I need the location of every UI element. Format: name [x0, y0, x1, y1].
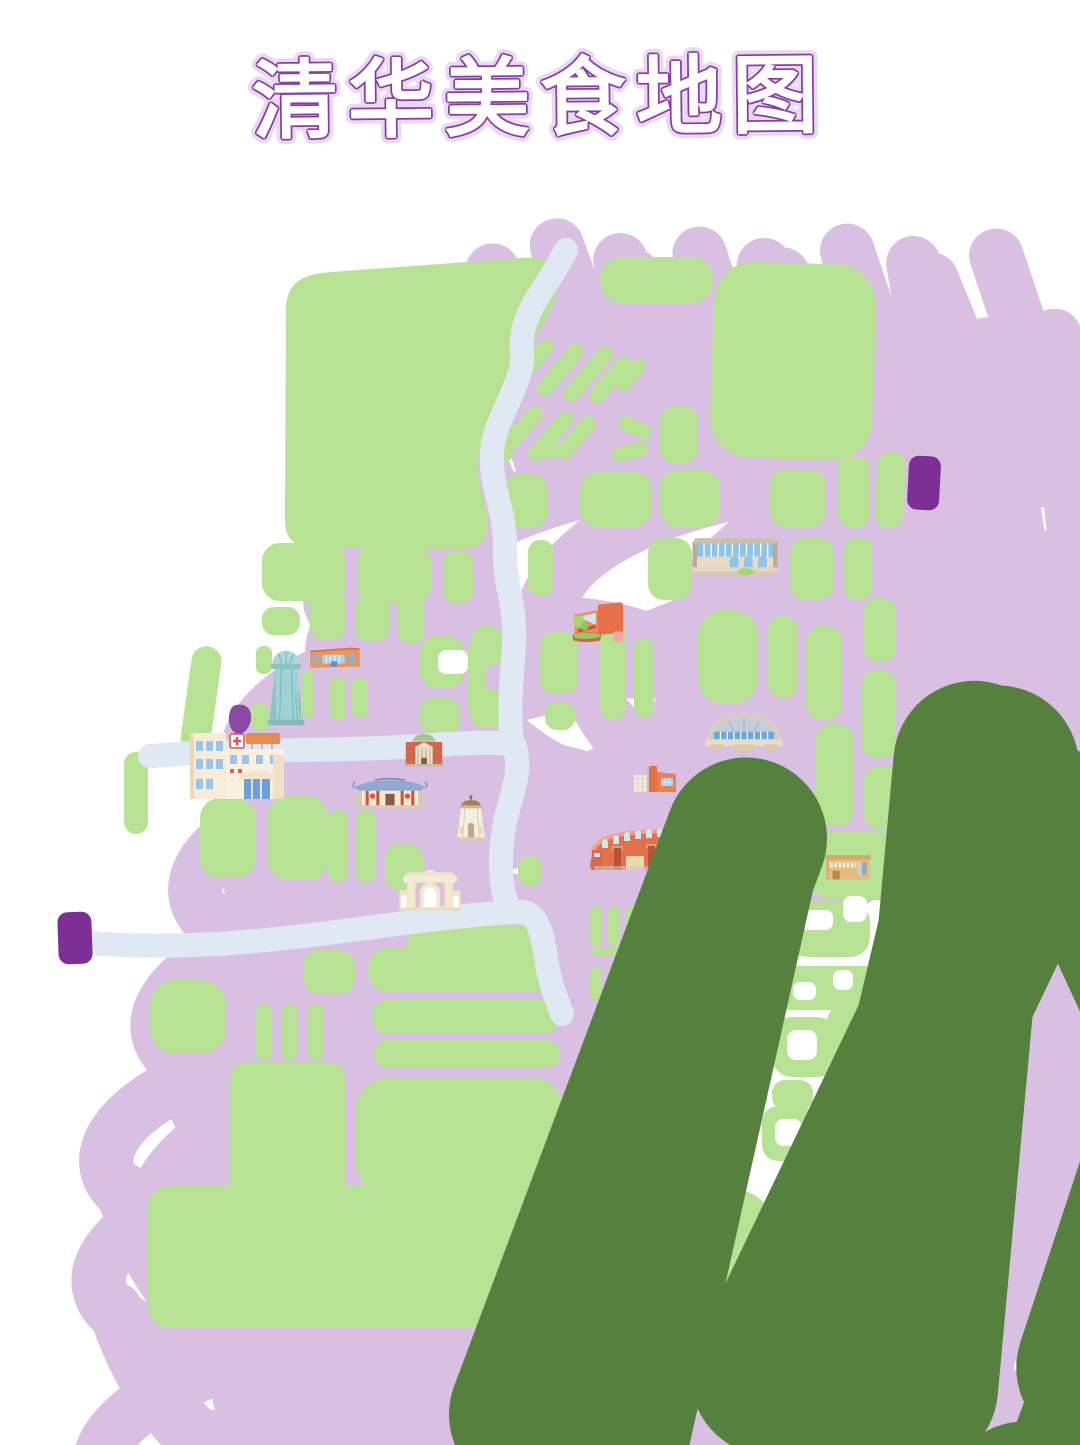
green-block — [590, 967, 602, 1001]
green-block — [328, 810, 348, 882]
green-block — [310, 593, 346, 639]
green-block — [698, 610, 758, 704]
green-block — [634, 638, 654, 718]
green-block — [398, 595, 424, 643]
green-block — [806, 626, 842, 720]
green-block — [518, 856, 542, 886]
green-block — [282, 1004, 298, 1060]
green-block — [874, 451, 906, 528]
green-block — [256, 646, 272, 674]
green-block — [250, 703, 270, 731]
green-block — [660, 470, 720, 527]
courtyard-hole — [438, 650, 468, 674]
green-block — [385, 843, 423, 891]
green-block — [308, 1004, 324, 1060]
green-block — [356, 810, 376, 882]
green-block — [374, 1040, 560, 1068]
green-block — [768, 616, 798, 698]
green-block — [790, 538, 834, 600]
green-block — [608, 906, 620, 946]
green-block — [357, 545, 431, 603]
green-block — [770, 469, 826, 527]
green-block — [150, 980, 226, 1054]
green-block — [355, 597, 389, 641]
green-block — [862, 670, 896, 758]
green-block — [590, 906, 602, 946]
food-map-poster: 清华美食地图 清华美食地图 — [0, 0, 1080, 1445]
green-block — [838, 457, 870, 527]
green-block — [420, 698, 460, 734]
green-block — [443, 551, 473, 603]
green-block — [372, 1000, 560, 1034]
courtyard-hole — [843, 896, 867, 922]
green-block — [256, 1004, 272, 1060]
green-block — [200, 798, 256, 878]
map-title: 清华美食地图 — [251, 46, 828, 152]
green-block — [352, 678, 368, 718]
east-gate-marker — [907, 455, 942, 511]
tan-dining-hall — [825, 855, 870, 879]
green-block — [302, 670, 314, 718]
green-block — [540, 632, 578, 694]
courtyard-hole — [787, 1030, 817, 1060]
green-block — [368, 948, 560, 992]
green-block — [600, 257, 713, 303]
green-block — [303, 950, 355, 994]
green-block — [528, 540, 554, 596]
green-block — [660, 406, 698, 464]
west-gate-marker — [57, 911, 93, 964]
green-block — [545, 702, 575, 730]
green-block — [580, 472, 652, 527]
old-gate — [399, 870, 460, 911]
green-block — [864, 598, 896, 662]
green-block — [648, 538, 692, 600]
courtyard-hole — [793, 982, 816, 1000]
building-blue-glass-hall — [693, 538, 778, 575]
building-orange-academic — [310, 648, 360, 667]
observatory-tower — [268, 651, 305, 725]
page-title: 清华美食地图 清华美食地图 — [251, 46, 828, 152]
green-block — [472, 626, 502, 666]
green-block — [268, 796, 328, 880]
green-block — [772, 1080, 813, 1110]
courtyard-hole — [833, 970, 853, 990]
green-block — [262, 543, 346, 601]
green-block — [709, 260, 878, 462]
green-block — [330, 678, 346, 720]
green-block — [262, 607, 300, 635]
campus-map: 清华美食地图 清华美食地图 — [0, 0, 1080, 1445]
green-block — [844, 538, 872, 600]
